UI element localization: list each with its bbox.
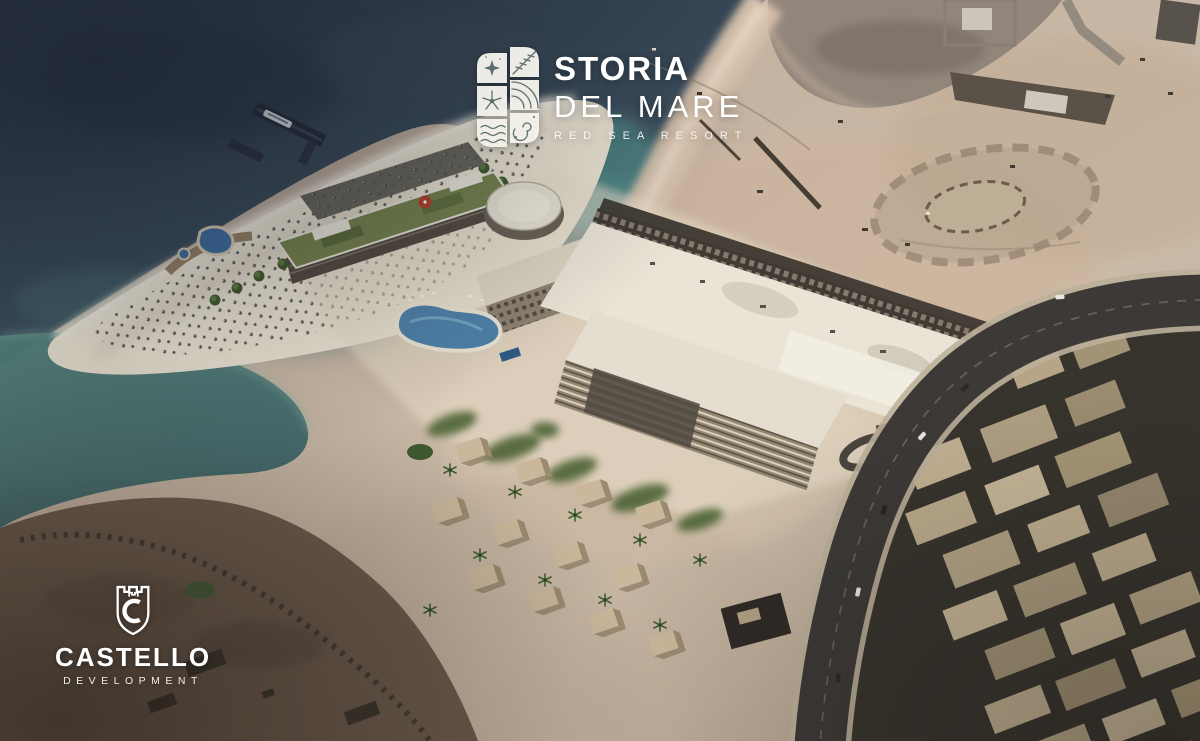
brand-subname: DEL MARE <box>554 91 748 122</box>
brand-tagline: RED SEA RESORT <box>554 131 748 142</box>
castello-crest-icon <box>110 584 156 638</box>
resort-aerial-render: STORIA DEL MARE RED SEA RESORT CASTELLO … <box>0 0 1200 741</box>
castello-development-logo: CASTELLO DEVELOPMENT <box>48 584 218 687</box>
storia-del-mare-logo: STORIA DEL MARE RED SEA RESORT <box>476 42 748 152</box>
developer-name: CASTELLO <box>48 644 218 670</box>
developer-subtitle: DEVELOPMENT <box>48 676 218 687</box>
brand-name: STORIA <box>554 52 748 85</box>
storia-s-mosaic-icon <box>476 42 540 152</box>
